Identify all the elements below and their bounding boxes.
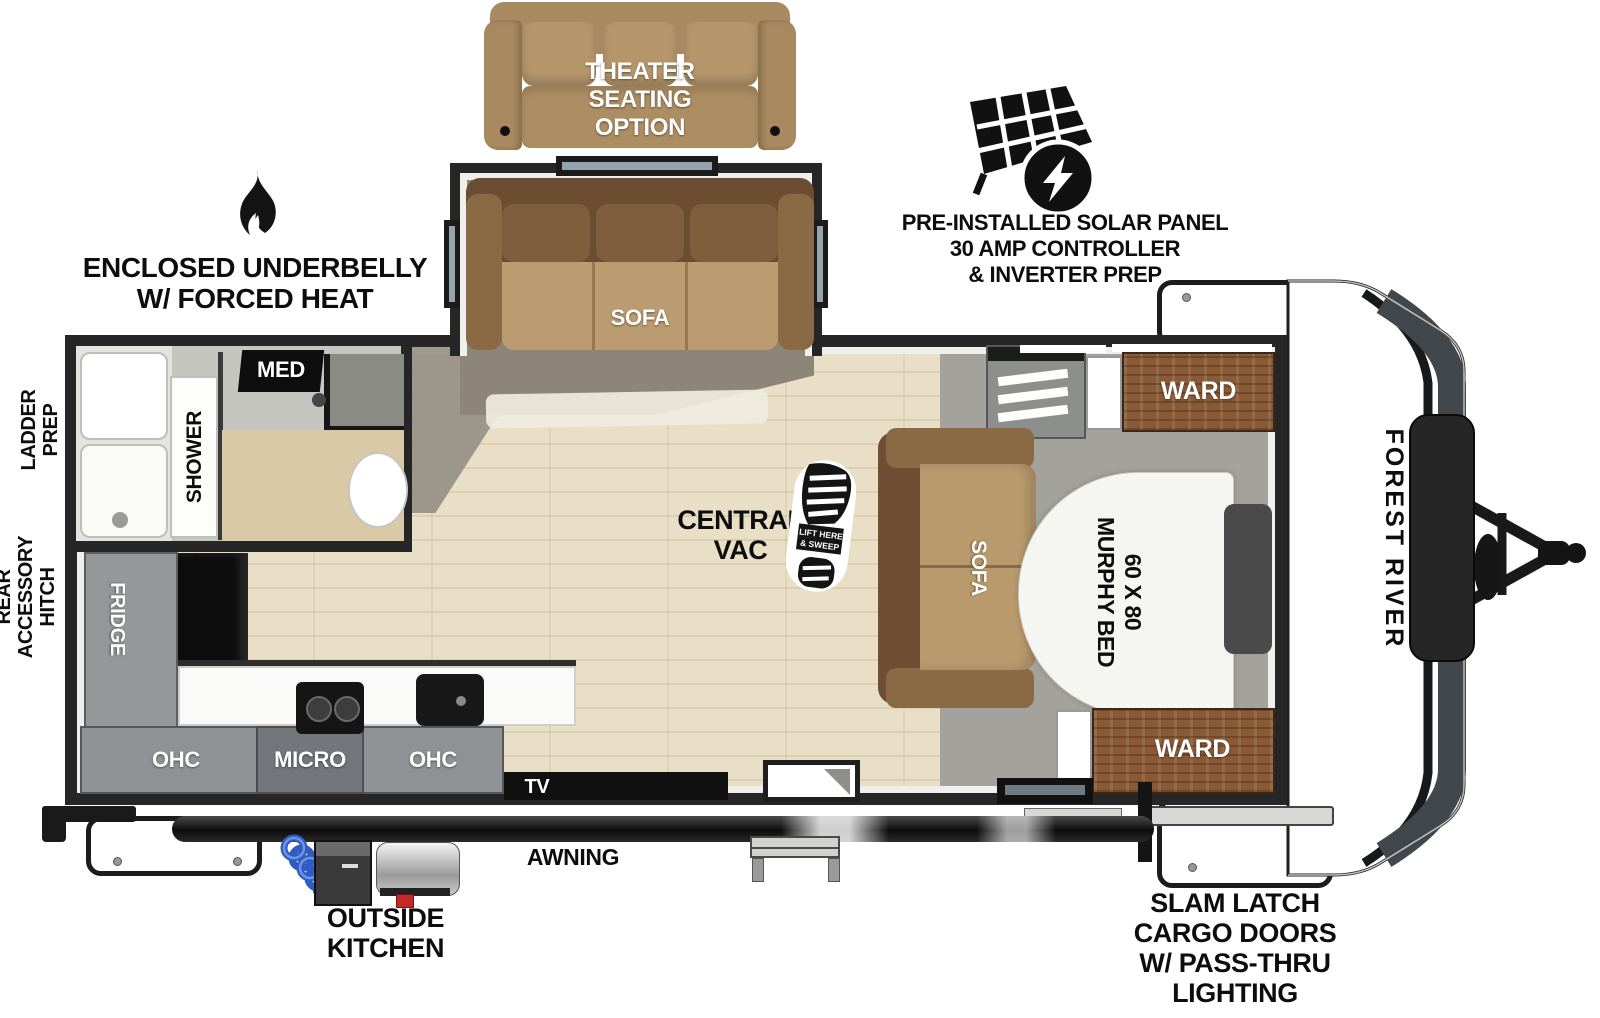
- screw: [1182, 293, 1191, 302]
- entry-rug: [486, 390, 769, 429]
- ward-door-open-bottom: [1056, 710, 1092, 782]
- rear-hitch-bracket-end: [42, 820, 66, 842]
- ohc-right-label: OHC: [364, 748, 502, 772]
- bath-sink-icon: [312, 393, 326, 407]
- ohc-left-label: OHC: [96, 748, 256, 772]
- step-leg: [828, 858, 840, 882]
- burner-icon: [334, 696, 360, 722]
- entry-door: [763, 760, 860, 802]
- ward-door-open-top: [1086, 356, 1122, 430]
- murphy-name-label: MURPHY BED: [1092, 517, 1119, 667]
- underbelly-line2: W/ FORCED HEAT: [38, 283, 472, 314]
- bath-vanity: [324, 354, 404, 432]
- wall-trim: [1020, 345, 1106, 353]
- fridge-label: FRIDGE: [106, 544, 128, 694]
- cargo-doors-callout: SLAM LATCH CARGO DOORS W/ PASS-THRU LIGH…: [1040, 888, 1430, 1008]
- propane-cover-icon: [1410, 415, 1474, 661]
- ward-bottom-label: WARD: [1110, 736, 1275, 764]
- wall-trim: [1112, 344, 1272, 352]
- micro-label: MICRO: [256, 748, 364, 772]
- theater-label-line3: OPTION: [484, 114, 796, 142]
- brand-label: FOREST RIVER: [1378, 404, 1408, 674]
- burner-icon: [306, 696, 332, 722]
- cargo-line3: W/ PASS-THRU: [1040, 948, 1430, 978]
- theater-seating-sofa: THEATER SEATING OPTION: [484, 2, 796, 150]
- bedroom-chest: [986, 345, 1086, 439]
- solar-line1: PRE-INSTALLED SOLAR PANEL: [880, 210, 1250, 236]
- cargo-line4: LIGHTING: [1040, 978, 1430, 1008]
- slide-back-cushion: [690, 204, 778, 262]
- ladder-prep-label: LADDER PREP: [18, 345, 62, 515]
- murphy-size-label: 60 X 80: [1119, 517, 1146, 667]
- shower-label: SHOWER: [183, 377, 205, 537]
- kitchen-sink-icon: [416, 674, 484, 726]
- window-glass: [817, 226, 823, 302]
- window-glass: [449, 226, 455, 302]
- ward-top-label: WARD: [1122, 378, 1275, 406]
- murphy-sofa-arm: [886, 428, 1034, 468]
- murphy-sofa-arm: [886, 668, 1034, 708]
- murphy-sofa-back: [878, 432, 924, 704]
- theater-seating-label: THEATER SEATING OPTION: [484, 58, 796, 142]
- tv-label: TV: [512, 776, 562, 798]
- ladder-line1: LADDER: [18, 345, 40, 515]
- chest-louver: [998, 387, 1069, 404]
- cargo-line2: CARGO DOORS: [1040, 918, 1430, 948]
- screw: [113, 857, 122, 866]
- slide-window-right: [812, 220, 828, 308]
- bed-headboard: [1224, 504, 1272, 654]
- rear-hitch-line1: REAR: [0, 512, 15, 682]
- kitchen-countertop: [178, 666, 576, 726]
- entry-steps-icon: [750, 836, 840, 858]
- step-leg: [752, 858, 764, 882]
- front-cap: [1270, 265, 1600, 895]
- screw: [233, 857, 242, 866]
- rear-hitch-line3: HITCH: [37, 512, 59, 682]
- underbelly-line1: ENCLOSED UNDERBELLY: [38, 252, 472, 283]
- theater-label-line1: THEATER: [484, 58, 796, 86]
- shower-drain-icon: [112, 512, 128, 528]
- slide-back-cushion: [596, 204, 684, 262]
- ladder-line2: PREP: [40, 345, 62, 515]
- slide-sofa-label: SOFA: [466, 306, 814, 330]
- outside-kitchen-line2: KITCHEN: [278, 933, 493, 963]
- murphy-bed-label: 60 X 80 MURPHY BED: [1090, 517, 1146, 667]
- awning-label: AWNING: [478, 845, 668, 871]
- toilet-icon: [348, 452, 408, 528]
- solar-panel-icon: [940, 80, 1110, 218]
- outside-kitchen-box: [314, 840, 372, 906]
- entry-door-swing: [824, 769, 850, 795]
- slide-sofa: SOFA: [466, 178, 814, 350]
- murphy-sofa: [878, 428, 1040, 710]
- rv-floorplan: THEATER SEATING OPTION ENCLOSED UNDERBEL…: [0, 0, 1600, 1018]
- slide-window-top: [556, 156, 718, 176]
- med-label: MED: [240, 358, 322, 382]
- chest-louver: [998, 405, 1069, 422]
- bedroom-window: [997, 778, 1093, 804]
- chest-louver: [998, 369, 1069, 386]
- tongue-jack-icon: [1474, 534, 1502, 600]
- fridge-cabinet: [84, 552, 178, 734]
- slide-back-cushion: [502, 204, 590, 262]
- murphy-sofa-label: SOFA: [968, 513, 990, 623]
- theater-label-line2: SEATING: [484, 86, 796, 114]
- window-glass: [562, 162, 712, 170]
- rear-hitch-line2: ACCESSORY: [15, 512, 37, 682]
- outside-kitchen-top: [316, 842, 370, 856]
- body-molding: [1148, 806, 1334, 826]
- flame-icon: [224, 168, 288, 250]
- outside-kitchen-label: OUTSIDE KITCHEN: [278, 903, 493, 963]
- screw: [1188, 863, 1197, 872]
- faucet-icon: [456, 696, 466, 706]
- slide-window-left: [444, 220, 460, 308]
- rear-accessory-hitch-label: REAR ACCESSORY HITCH: [0, 512, 59, 682]
- solar-line2: 30 AMP CONTROLLER: [880, 236, 1250, 262]
- outside-kitchen-line1: OUTSIDE: [278, 903, 493, 933]
- underbelly-callout: ENCLOSED UNDERBELLY W/ FORCED HEAT: [38, 252, 472, 314]
- step-line: [752, 847, 838, 849]
- window-glass: [1005, 785, 1085, 795]
- shower-pan: [80, 352, 168, 440]
- cargo-line1: SLAM LATCH: [1040, 888, 1430, 918]
- solar-callout: PRE-INSTALLED SOLAR PANEL 30 AMP CONTROL…: [880, 210, 1250, 288]
- bootprint-icon: LIFT HERE & SWEEP: [786, 458, 856, 594]
- hitch-coupler-icon: [1538, 541, 1570, 565]
- tank-base: [380, 888, 450, 896]
- outside-faucet: [342, 864, 358, 868]
- cooktop-icon: [296, 682, 364, 734]
